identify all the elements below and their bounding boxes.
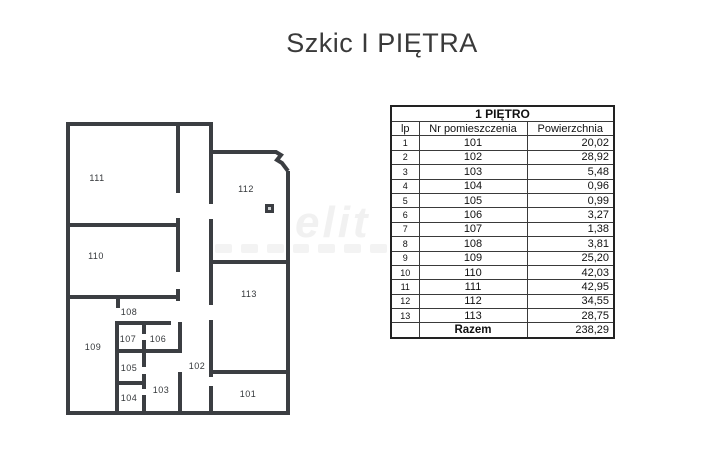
cell-area: 25,20 xyxy=(527,251,614,265)
table-row: 61063,27 xyxy=(391,208,614,222)
cell-area: 3,81 xyxy=(527,237,614,251)
column-header-area: Powierzchnia xyxy=(527,122,614,136)
cell-area: 5,48 xyxy=(527,165,614,179)
total-area: 238,29 xyxy=(527,323,614,338)
cell-room: 109 xyxy=(419,251,527,265)
cell-room: 101 xyxy=(419,136,527,150)
cell-area: 1,38 xyxy=(527,222,614,236)
cell-empty xyxy=(391,323,419,338)
table-row: 1111142,95 xyxy=(391,280,614,294)
cell-lp: 11 xyxy=(391,280,419,294)
room-label-109: 109 xyxy=(85,342,102,352)
cell-lp: 9 xyxy=(391,251,419,265)
cell-room: 111 xyxy=(419,280,527,294)
cell-room: 108 xyxy=(419,237,527,251)
cell-area: 28,92 xyxy=(527,150,614,164)
room-label-110: 110 xyxy=(88,251,104,261)
cell-area: 3,27 xyxy=(527,208,614,222)
cell-lp: 7 xyxy=(391,222,419,236)
cell-room: 104 xyxy=(419,179,527,193)
table-total-row: Razem 238,29 xyxy=(391,323,614,338)
cell-lp: 6 xyxy=(391,208,419,222)
cell-room: 107 xyxy=(419,222,527,236)
table-row: 71071,38 xyxy=(391,222,614,236)
room-label-104: 104 xyxy=(121,393,138,403)
cell-lp: 4 xyxy=(391,179,419,193)
cell-room: 102 xyxy=(419,150,527,164)
cell-room: 103 xyxy=(419,165,527,179)
cell-room: 112 xyxy=(419,294,527,308)
cell-lp: 10 xyxy=(391,265,419,279)
cell-room: 110 xyxy=(419,265,527,279)
table-row: 1011042,03 xyxy=(391,265,614,279)
table-row: 1211234,55 xyxy=(391,294,614,308)
room-label-112: 112 xyxy=(238,184,254,194)
cell-lp: 13 xyxy=(391,309,419,323)
table-row: 81083,81 xyxy=(391,237,614,251)
table-row: 110120,02 xyxy=(391,136,614,150)
cell-lp: 2 xyxy=(391,150,419,164)
cell-area: 28,75 xyxy=(527,309,614,323)
table-row: 1311328,75 xyxy=(391,309,614,323)
room-label-105: 105 xyxy=(121,363,138,373)
cell-lp: 5 xyxy=(391,193,419,207)
room-label-108: 108 xyxy=(121,307,138,317)
cell-area: 42,03 xyxy=(527,265,614,279)
scanned-document-page: Szkic I PIĘTRA elit xyxy=(0,0,714,464)
cell-area: 20,02 xyxy=(527,136,614,150)
table-body: 1 PIĘTRO lp Nr pomieszczenia Powierzchni… xyxy=(391,106,614,323)
cell-area: 42,95 xyxy=(527,280,614,294)
table-title-row: 1 PIĘTRO xyxy=(391,106,614,122)
room-label-101: 101 xyxy=(240,389,257,399)
room-label-103: 103 xyxy=(153,385,170,395)
cell-area: 34,55 xyxy=(527,294,614,308)
cell-lp: 12 xyxy=(391,294,419,308)
table-row: 210228,92 xyxy=(391,150,614,164)
cell-area: 0,99 xyxy=(527,193,614,207)
cell-lp: 3 xyxy=(391,165,419,179)
cell-room: 106 xyxy=(419,208,527,222)
room-label-107: 107 xyxy=(120,334,137,344)
column-header-lp: lp xyxy=(391,122,419,136)
total-label: Razem xyxy=(419,323,527,338)
room-label-113: 113 xyxy=(241,289,257,299)
table-title: 1 PIĘTRO xyxy=(391,106,614,122)
room-label-111: 111 xyxy=(89,173,104,183)
area-table: 1 PIĘTRO lp Nr pomieszczenia Powierzchni… xyxy=(390,105,615,339)
table-row: 51050,99 xyxy=(391,193,614,207)
cell-room: 105 xyxy=(419,193,527,207)
room-label-106: 106 xyxy=(150,334,167,344)
cell-lp: 1 xyxy=(391,136,419,150)
table-row: 31035,48 xyxy=(391,165,614,179)
room-label-102: 102 xyxy=(189,361,206,371)
table-header-row: lp Nr pomieszczenia Powierzchnia xyxy=(391,122,614,136)
table-row: 41040,96 xyxy=(391,179,614,193)
cell-area: 0,96 xyxy=(527,179,614,193)
column-header-room: Nr pomieszczenia xyxy=(419,122,527,136)
cell-lp: 8 xyxy=(391,237,419,251)
table-row: 910925,20 xyxy=(391,251,614,265)
cell-room: 113 xyxy=(419,309,527,323)
